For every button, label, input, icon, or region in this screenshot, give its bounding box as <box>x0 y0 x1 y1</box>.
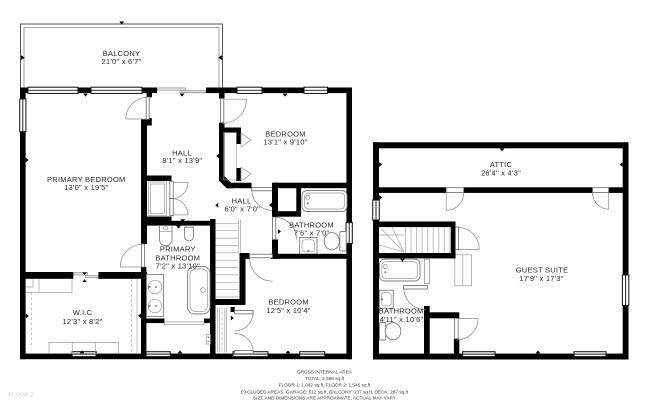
svg-text:13'1" x 9'10": 13'1" x 9'10" <box>263 137 307 146</box>
svg-text:21'0" x 6'7": 21'0" x 6'7" <box>102 57 142 66</box>
svg-text:EXCLUDED AREAS: GARAGE: 512 sq: EXCLUDED AREAS: GARAGE: 512 sq.ft, BALCO… <box>241 389 409 394</box>
svg-text:17'9" x 17'3": 17'9" x 17'3" <box>519 274 563 283</box>
svg-text:26'4" x 4'3": 26'4" x 4'3" <box>481 169 521 178</box>
svg-text:6'0" x 7'0": 6'0" x 7'0" <box>225 205 261 214</box>
svg-text:12'3" x 8'2": 12'3" x 8'2" <box>63 317 103 326</box>
svg-text:GROSS INTERNAL AREA: GROSS INTERNAL AREA <box>297 369 353 374</box>
svg-text:12'5" x 10'4": 12'5" x 10'4" <box>266 306 310 315</box>
svg-text:4'11" x 10'6": 4'11" x 10'6" <box>380 315 424 324</box>
svg-text:7'6" x 7'0": 7'6" x 7'0" <box>294 229 330 238</box>
svg-text:FLOOR 1: 1,042 sq.ft, FLOOR 2:: FLOOR 1: 1,042 sq.ft, FLOOR 2: 1,546 sq.… <box>279 383 371 388</box>
svg-text:FLOOR 2: FLOOR 2 <box>9 392 34 398</box>
svg-text:SIZE AND DIMENSIONS ARE APPROX: SIZE AND DIMENSIONS ARE APPROXIMATE, ACT… <box>253 396 397 401</box>
svg-text:W.I.C: W.I.C <box>73 308 93 317</box>
svg-text:TOTAL: 2,588 sq.ft: TOTAL: 2,588 sq.ft <box>305 376 345 381</box>
svg-text:7'2" x 13'10": 7'2" x 13'10" <box>156 262 200 271</box>
svg-text:13'0" x 19'5": 13'0" x 19'5" <box>64 183 108 192</box>
svg-text:8'1" x 13'9": 8'1" x 13'9" <box>162 156 202 165</box>
